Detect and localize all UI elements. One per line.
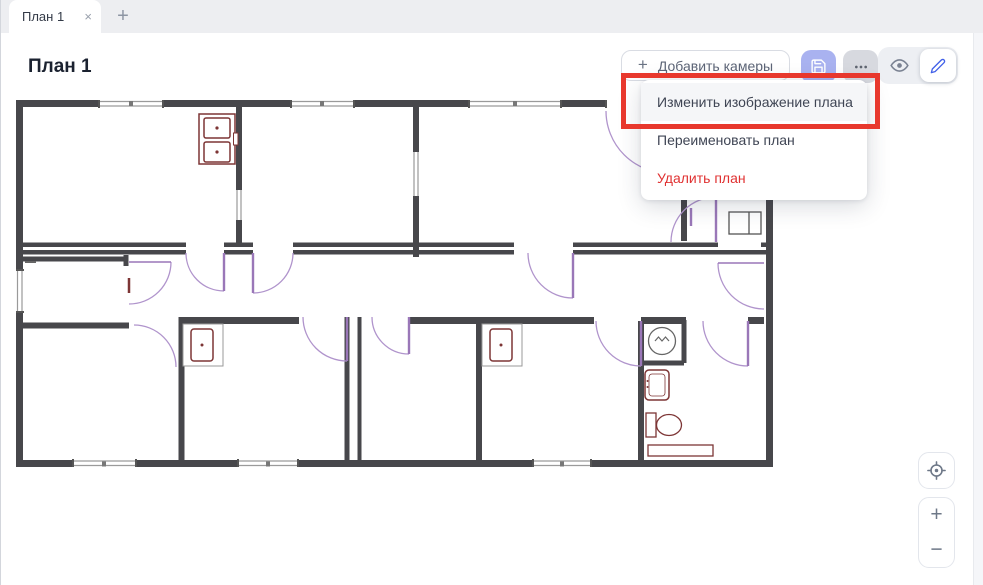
crosshair-icon — [926, 460, 947, 481]
new-tab-button[interactable]: + — [111, 4, 135, 28]
add-cameras-label: Добавить камеры — [658, 58, 773, 74]
plan-editor-window: План 1 × + План 1 — [0, 0, 983, 585]
ellipsis-icon — [853, 59, 869, 75]
tab-label: План 1 — [22, 9, 64, 24]
eye-icon — [890, 56, 909, 75]
view-mode-button[interactable] — [878, 47, 920, 84]
tab-plan-1[interactable]: План 1 × — [9, 0, 101, 33]
locate-button[interactable] — [918, 452, 955, 489]
zoom-out-button[interactable]: − — [919, 533, 954, 568]
plus-icon: + — [638, 55, 648, 75]
zoom-control: + − — [918, 497, 955, 568]
page-title: План 1 — [28, 56, 92, 78]
menu-item-delete-plan[interactable]: Удалить план — [641, 159, 867, 197]
more-actions-button[interactable] — [843, 50, 878, 83]
floppy-icon — [810, 58, 827, 75]
plus-icon: + — [117, 5, 129, 28]
save-plan-button[interactable] — [801, 50, 836, 83]
pencil-icon — [930, 58, 946, 74]
menu-item-rename-plan[interactable]: Переименовать план — [641, 121, 867, 159]
add-cameras-button[interactable]: + Добавить камеры — [621, 50, 790, 81]
tab-bar: План 1 × + — [1, 0, 983, 33]
tab-close-icon[interactable]: × — [84, 10, 92, 23]
plan-context-menu: Изменить изображение плана Переименовать… — [641, 80, 867, 200]
view-edit-toggle — [878, 47, 958, 84]
menu-item-change-plan-image[interactable]: Изменить изображение плана — [641, 83, 867, 121]
right-panel-strip[interactable] — [973, 33, 983, 585]
zoom-in-button[interactable]: + — [919, 498, 954, 533]
edit-mode-button[interactable] — [920, 49, 956, 82]
